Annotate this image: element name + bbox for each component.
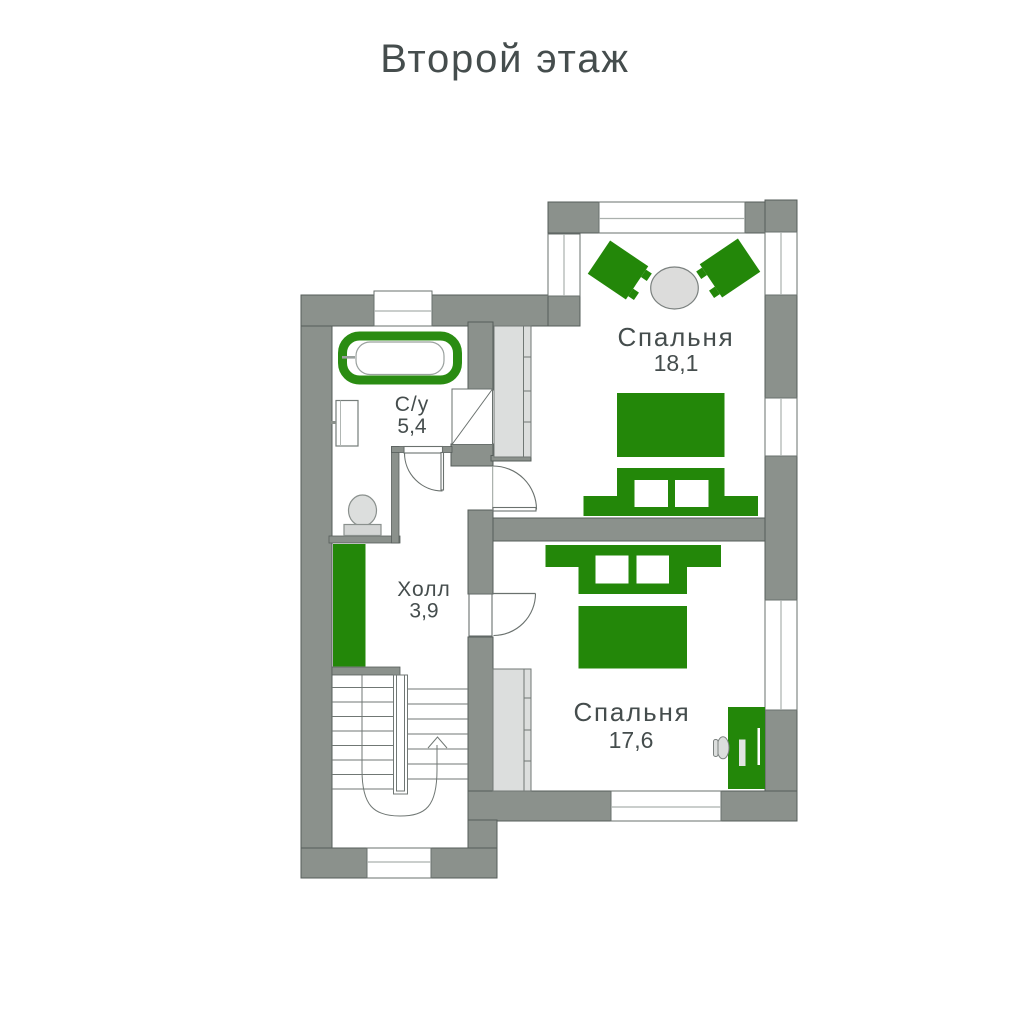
svg-text:Второй этаж: Второй этаж [380,37,630,81]
svg-text:С/у: С/у [395,393,430,416]
svg-text:Спальня: Спальня [573,697,690,727]
svg-text:18,1: 18,1 [654,350,699,376]
svg-text:3,9: 3,9 [409,600,438,623]
svg-text:Спальня: Спальня [617,322,734,352]
svg-text:5,4: 5,4 [397,415,427,438]
svg-text:Холл: Холл [397,578,451,601]
svg-text:17,6: 17,6 [609,727,654,753]
